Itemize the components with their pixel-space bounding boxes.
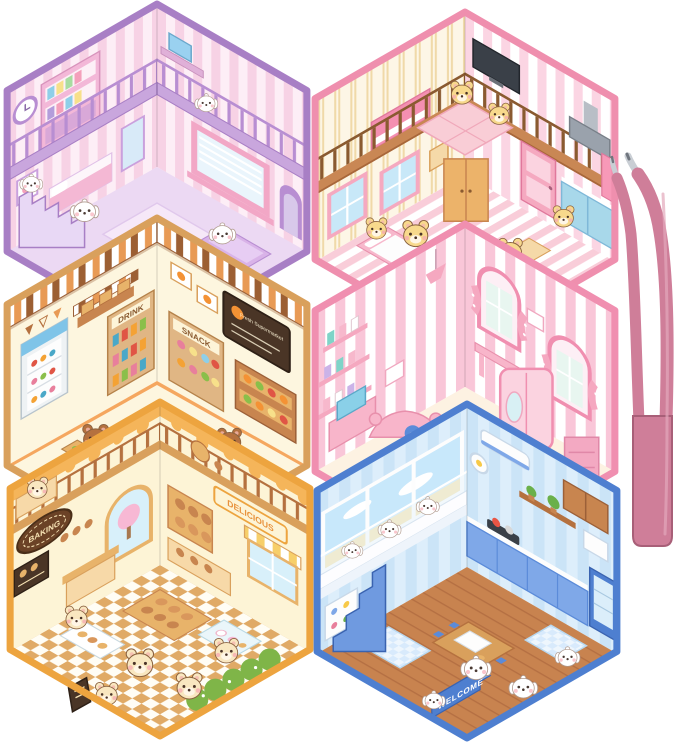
- scene-puppy-kitchen-diner: WELCOME: [313, 400, 621, 742]
- product-photo: DRINK Fresh Supermarket SNACK: [0, 0, 679, 743]
- tweezers-tool: [610, 150, 679, 552]
- tweezers-arm-left: [617, 178, 639, 422]
- scene-bear-bakery: BAKING: [6, 398, 314, 740]
- wardrobe: [444, 159, 488, 221]
